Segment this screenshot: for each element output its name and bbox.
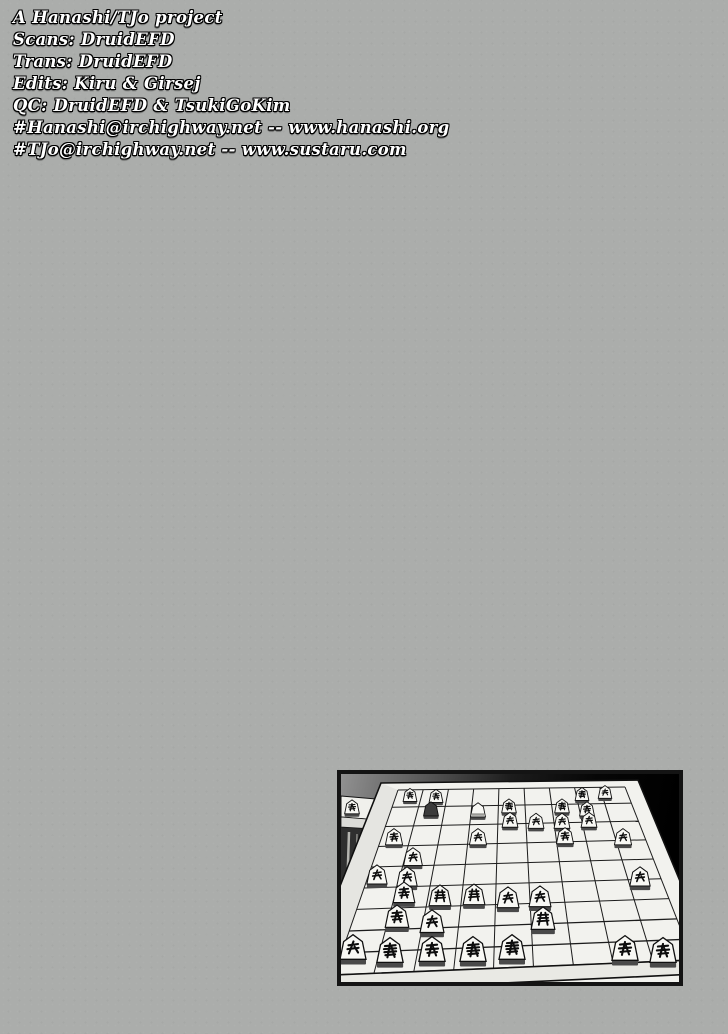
manga-panel [337,770,683,986]
credit-line-project: A Hanashi/TJo project [13,7,450,29]
credit-line-qc: QC: DruidEFD & TsukiGoKim [13,95,450,117]
shogi-board-illustration [341,774,679,982]
credit-line-trans: Trans: DruidEFD [13,51,450,73]
credits-block: A Hanashi/TJo project Scans: DruidEFD Tr… [13,7,450,161]
credit-line-irc-tjo: #TJo@irchighway.net -- www.sustaru.com [13,139,450,161]
credit-line-irc-hanashi: #Hanashi@irchighway.net -- www.hanashi.o… [13,117,450,139]
credit-line-edits: Edits: Kiru & Girsej [13,73,450,95]
credit-line-scans: Scans: DruidEFD [13,29,450,51]
